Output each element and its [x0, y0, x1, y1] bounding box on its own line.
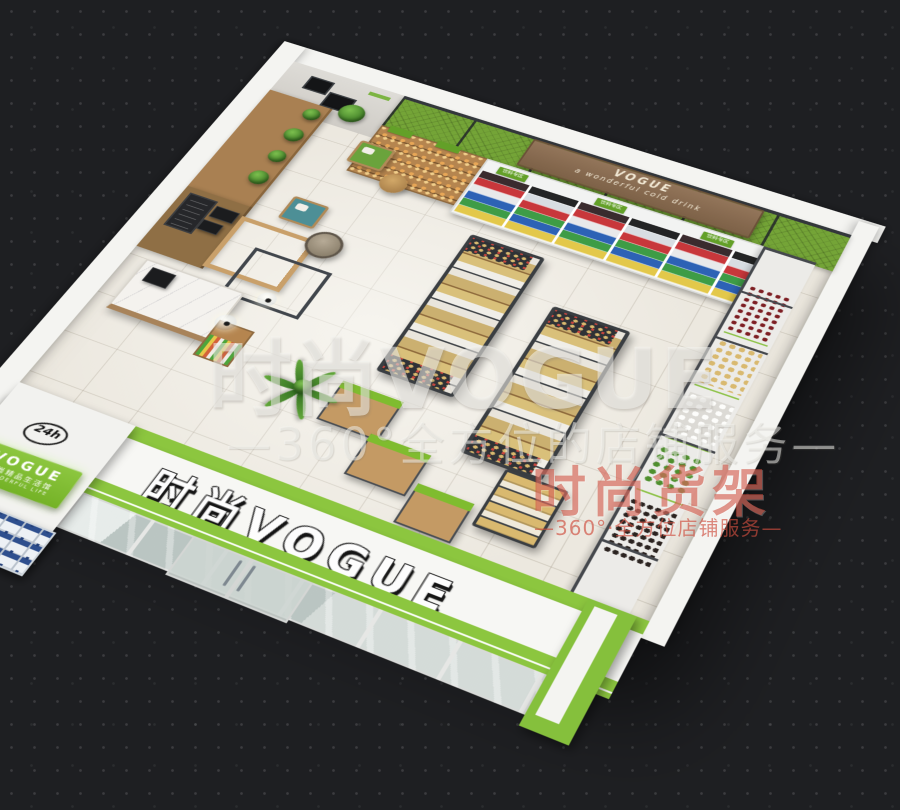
rack-header-sign — [339, 380, 404, 409]
rack-header-sign — [366, 434, 431, 463]
armchair-teal — [277, 196, 329, 230]
rack-header-sign — [413, 483, 474, 511]
side-signboard: VOGUE 时尚精品生活馆 WONDERFUL LIFE — [0, 439, 83, 509]
store-3d-plane: VOGUE a wonderful cold drink 饮料专区 饮料专区 饮… — [0, 61, 852, 657]
pillow — [294, 203, 309, 212]
pillow — [361, 146, 376, 155]
gondola-endcap — [547, 310, 618, 345]
24h-logo: 24h — [18, 415, 74, 451]
store-floor: VOGUE a wonderful cold drink 饮料专区 饮料专区 饮… — [0, 61, 852, 657]
gondola-endcap — [464, 238, 533, 271]
gondola-endcap — [466, 435, 541, 474]
gondola-endcap — [381, 354, 453, 391]
promo-rack — [316, 380, 404, 441]
gold-snack-gondola — [471, 469, 568, 549]
render-scene: VOGUE a wonderful cold drink 饮料专区 饮料专区 饮… — [0, 0, 900, 786]
